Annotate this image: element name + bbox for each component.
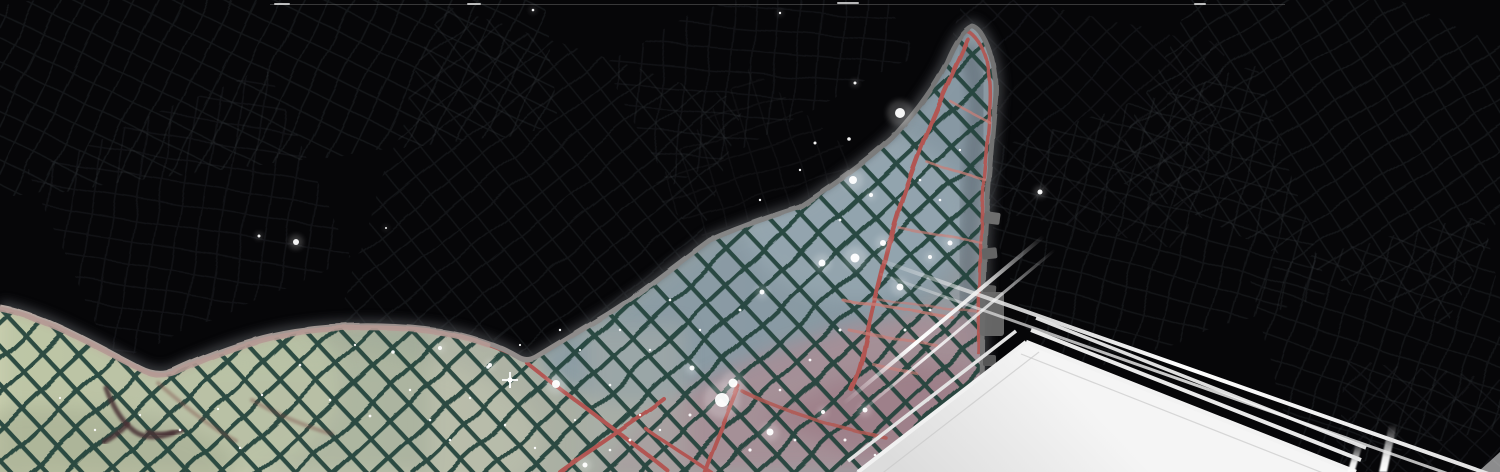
sparkle: [939, 199, 942, 202]
sparkle: [669, 299, 672, 302]
sparkle: [814, 142, 817, 145]
sparkle: [729, 379, 738, 388]
sparkle: [438, 346, 442, 350]
sparkle: [689, 414, 692, 417]
sparkle: [869, 193, 873, 197]
sparkle: [948, 241, 953, 246]
sparkle: [760, 290, 765, 295]
sparkle: [847, 137, 851, 141]
sparkle: [504, 424, 506, 426]
sparkle: [690, 366, 695, 371]
sparkle: [639, 414, 641, 416]
sparkle: [534, 447, 536, 449]
sparkle: [739, 309, 742, 312]
sparkle: [821, 410, 825, 414]
star: [1038, 190, 1043, 195]
sparkle: [897, 284, 904, 291]
sparkle: [139, 414, 141, 416]
sparkle: [583, 463, 588, 468]
sparkle: [904, 329, 907, 332]
sparkle: [299, 364, 302, 367]
comic-panel-artwork: [0, 0, 1500, 472]
sparkle: [849, 176, 857, 184]
sparkle: [629, 439, 632, 442]
sparkle: [449, 439, 452, 442]
star: [532, 9, 535, 12]
sparkle: [579, 349, 581, 351]
star: [258, 235, 261, 238]
star: [293, 239, 299, 245]
sparkle: [179, 429, 182, 432]
sparkle: [919, 179, 922, 182]
sparkle: [391, 350, 395, 354]
webtoon-panel: [0, 0, 1500, 472]
sparkle: [409, 389, 411, 391]
sparkle: [94, 429, 96, 431]
sparkle: [609, 449, 612, 452]
sparkle: [574, 419, 576, 421]
sparkle: [928, 255, 932, 259]
glint-core: [507, 377, 512, 382]
sparkle: [715, 393, 729, 407]
sparkle: [559, 329, 561, 331]
sparkle: [217, 408, 219, 410]
sparkle: [759, 199, 761, 201]
sparkle: [329, 399, 331, 401]
sparkle: [369, 415, 372, 418]
sparkle: [552, 380, 560, 388]
edge-tab: [983, 211, 1001, 225]
sparkle: [799, 169, 801, 171]
sparkle: [819, 260, 826, 267]
sparkle: [839, 329, 842, 332]
sparkle: [929, 309, 932, 312]
sparkle: [239, 447, 241, 449]
star: [779, 12, 781, 14]
sparkle: [844, 439, 847, 442]
sparkle: [649, 349, 651, 351]
sparkle: [839, 219, 842, 222]
sparkle: [486, 365, 490, 369]
sparkle: [261, 394, 263, 396]
sparkle: [699, 329, 701, 331]
sparkle: [794, 439, 797, 442]
sparkle: [59, 397, 61, 399]
sparkle: [619, 329, 621, 331]
star: [385, 227, 387, 229]
sparkle: [609, 384, 612, 387]
sparkle: [851, 254, 860, 263]
sparkle: [880, 240, 886, 246]
sparkle: [748, 448, 751, 451]
sparkle: [354, 344, 356, 346]
sparkle: [959, 149, 961, 151]
sparkle: [779, 389, 782, 392]
sparkle: [767, 429, 774, 436]
sparkle: [519, 344, 521, 346]
edge-tab: [982, 247, 998, 260]
sparkle: [809, 359, 812, 362]
sparkle: [895, 108, 905, 118]
star: [854, 82, 857, 85]
sparkle: [429, 419, 432, 422]
sparkle: [469, 397, 471, 399]
sparkle: [659, 429, 661, 431]
